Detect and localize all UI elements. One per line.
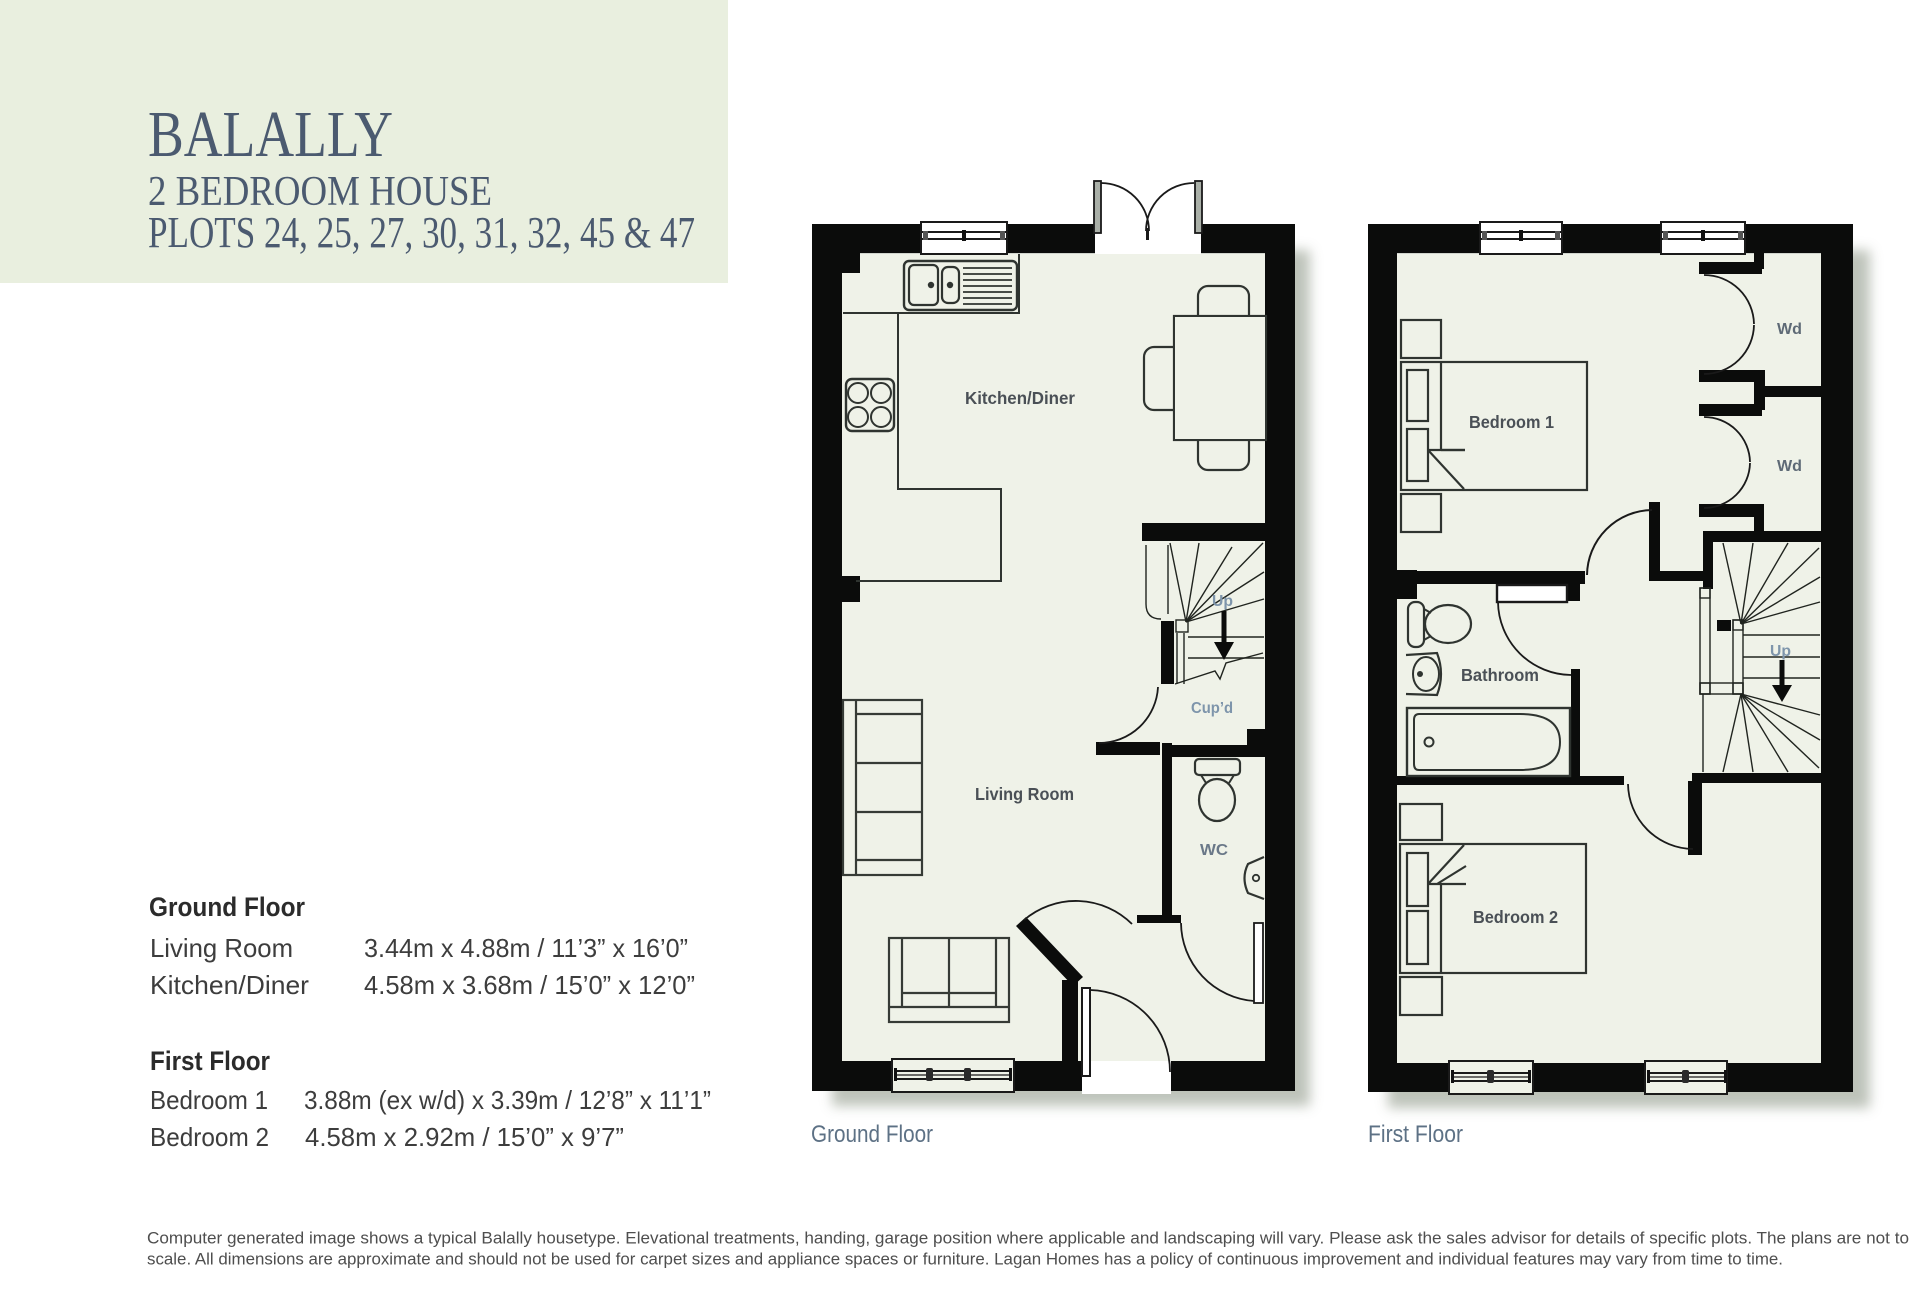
svg-text:Bedroom 2: Bedroom 2	[150, 1122, 269, 1152]
svg-text:4.58m x 2.92m / 15’0” x 9’7”: 4.58m x 2.92m / 15’0” x 9’7”	[305, 1122, 624, 1152]
svg-text:Up: Up	[1770, 643, 1791, 660]
svg-text:Ground Floor: Ground Floor	[149, 892, 305, 922]
svg-text:WC: WC	[1200, 842, 1228, 859]
svg-text:Up: Up	[1212, 593, 1233, 610]
svg-text:Kitchen/Diner: Kitchen/Diner	[150, 970, 309, 1000]
svg-text:Bedroom 1: Bedroom 1	[150, 1085, 268, 1115]
svg-text:First Floor: First Floor	[150, 1046, 270, 1076]
svg-text:Ground Floor: Ground Floor	[811, 1121, 933, 1148]
svg-text:Computer generated image shows: Computer generated image shows a typical…	[147, 1230, 1909, 1248]
svg-text:Bedroom 1: Bedroom 1	[1469, 412, 1554, 432]
svg-text:Living Room: Living Room	[150, 933, 293, 963]
svg-text:4.58m x 3.68m / 15’0” x 12’0”: 4.58m x 3.68m / 15’0” x 12’0”	[364, 970, 695, 1000]
svg-text:First Floor: First Floor	[1368, 1121, 1463, 1148]
svg-text:BALALLY: BALALLY	[148, 98, 393, 171]
svg-text:Wd: Wd	[1777, 458, 1802, 475]
svg-text:Kitchen/Diner: Kitchen/Diner	[965, 388, 1075, 408]
svg-text:scale. All dimensions are appr: scale. All dimensions are approximate an…	[147, 1251, 1783, 1269]
svg-text:Wd: Wd	[1777, 321, 1802, 338]
svg-text:Living Room: Living Room	[975, 784, 1074, 804]
svg-text:PLOTS 24, 25, 27, 30, 31, 32,: PLOTS 24, 25, 27, 30, 31, 32, 45 & 47	[148, 208, 695, 257]
svg-text:Bathroom: Bathroom	[1461, 665, 1539, 685]
svg-text:Bedroom 2: Bedroom 2	[1473, 907, 1558, 927]
svg-text:3.44m x 4.88m / 11’3” x 16’0”: 3.44m x 4.88m / 11’3” x 16’0”	[364, 933, 688, 963]
svg-text:Cup’d: Cup’d	[1191, 700, 1233, 717]
svg-text:3.88m (ex w/d) x 3.39m / 12’8”: 3.88m (ex w/d) x 3.39m / 12’8” x 11’1”	[304, 1085, 711, 1115]
